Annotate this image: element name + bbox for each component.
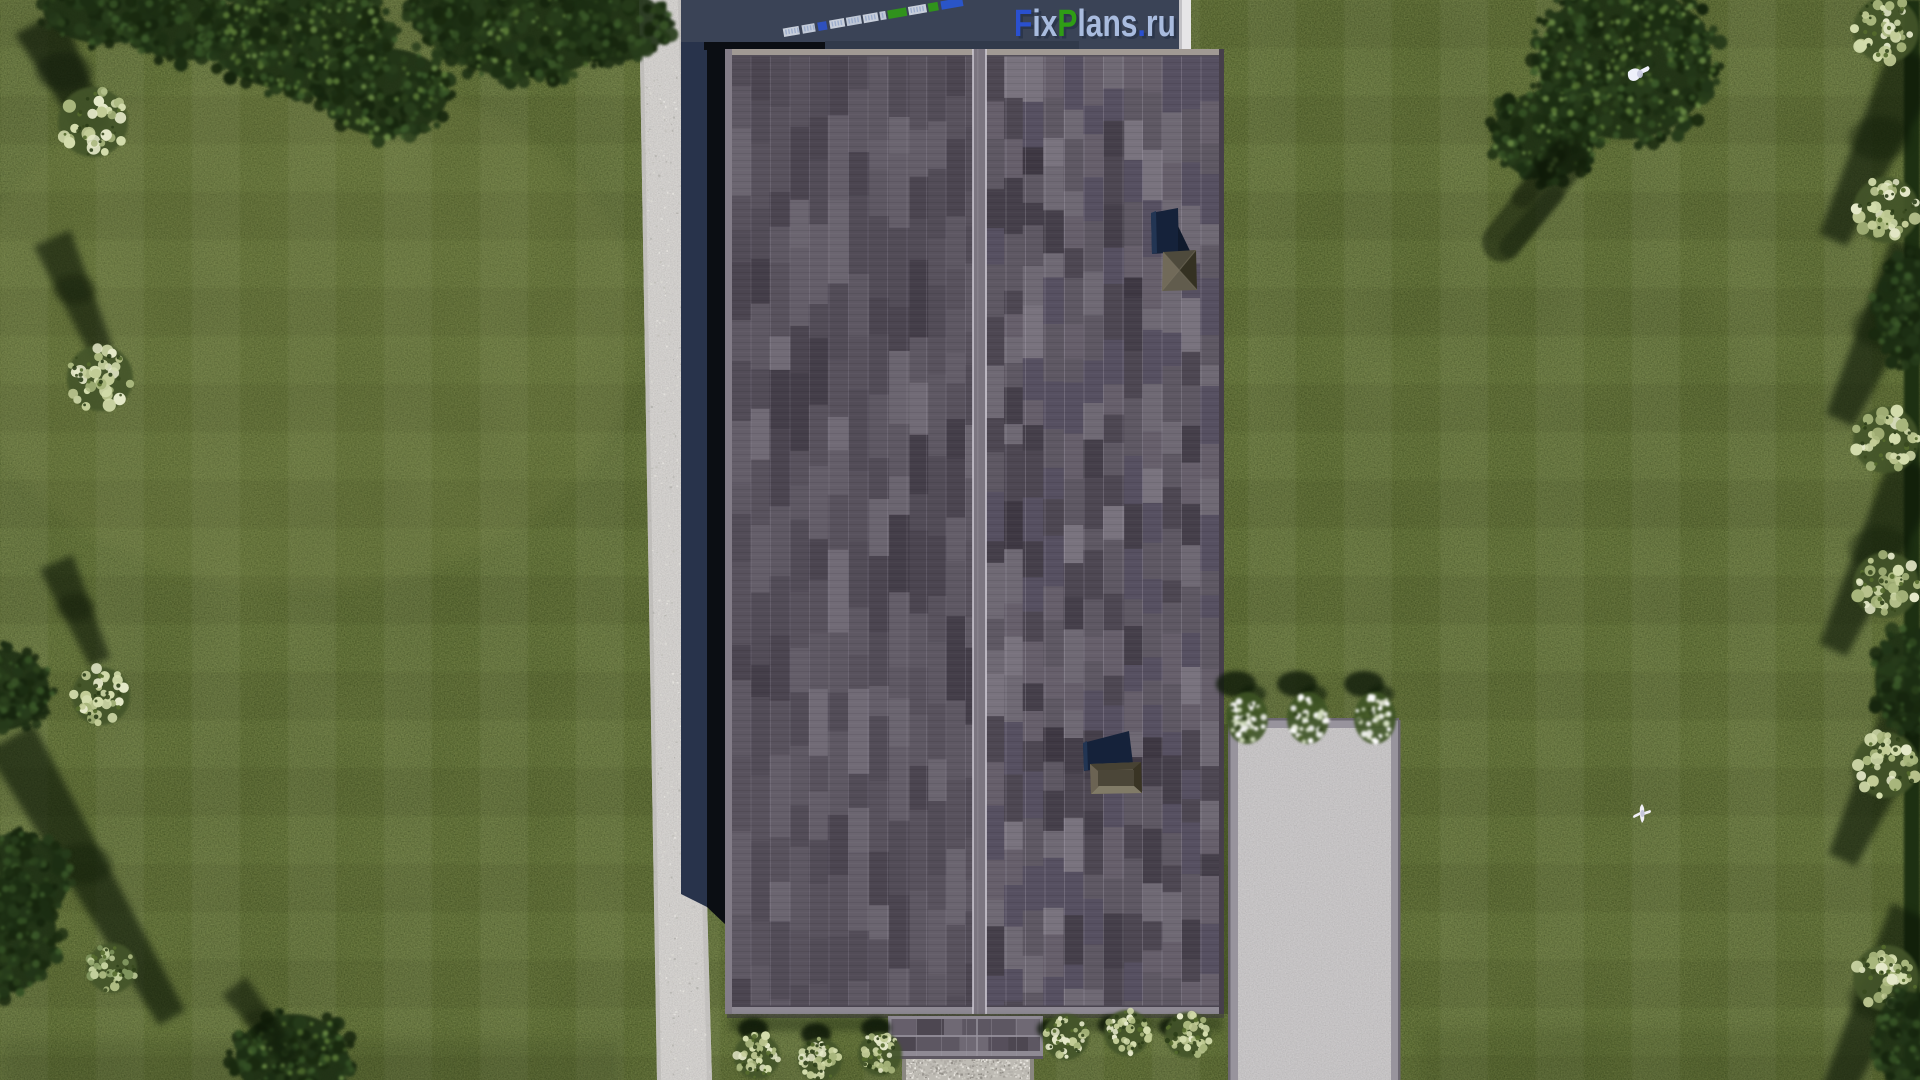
svg-text:FixPlans.ru: FixPlans.ru — [1014, 3, 1176, 45]
